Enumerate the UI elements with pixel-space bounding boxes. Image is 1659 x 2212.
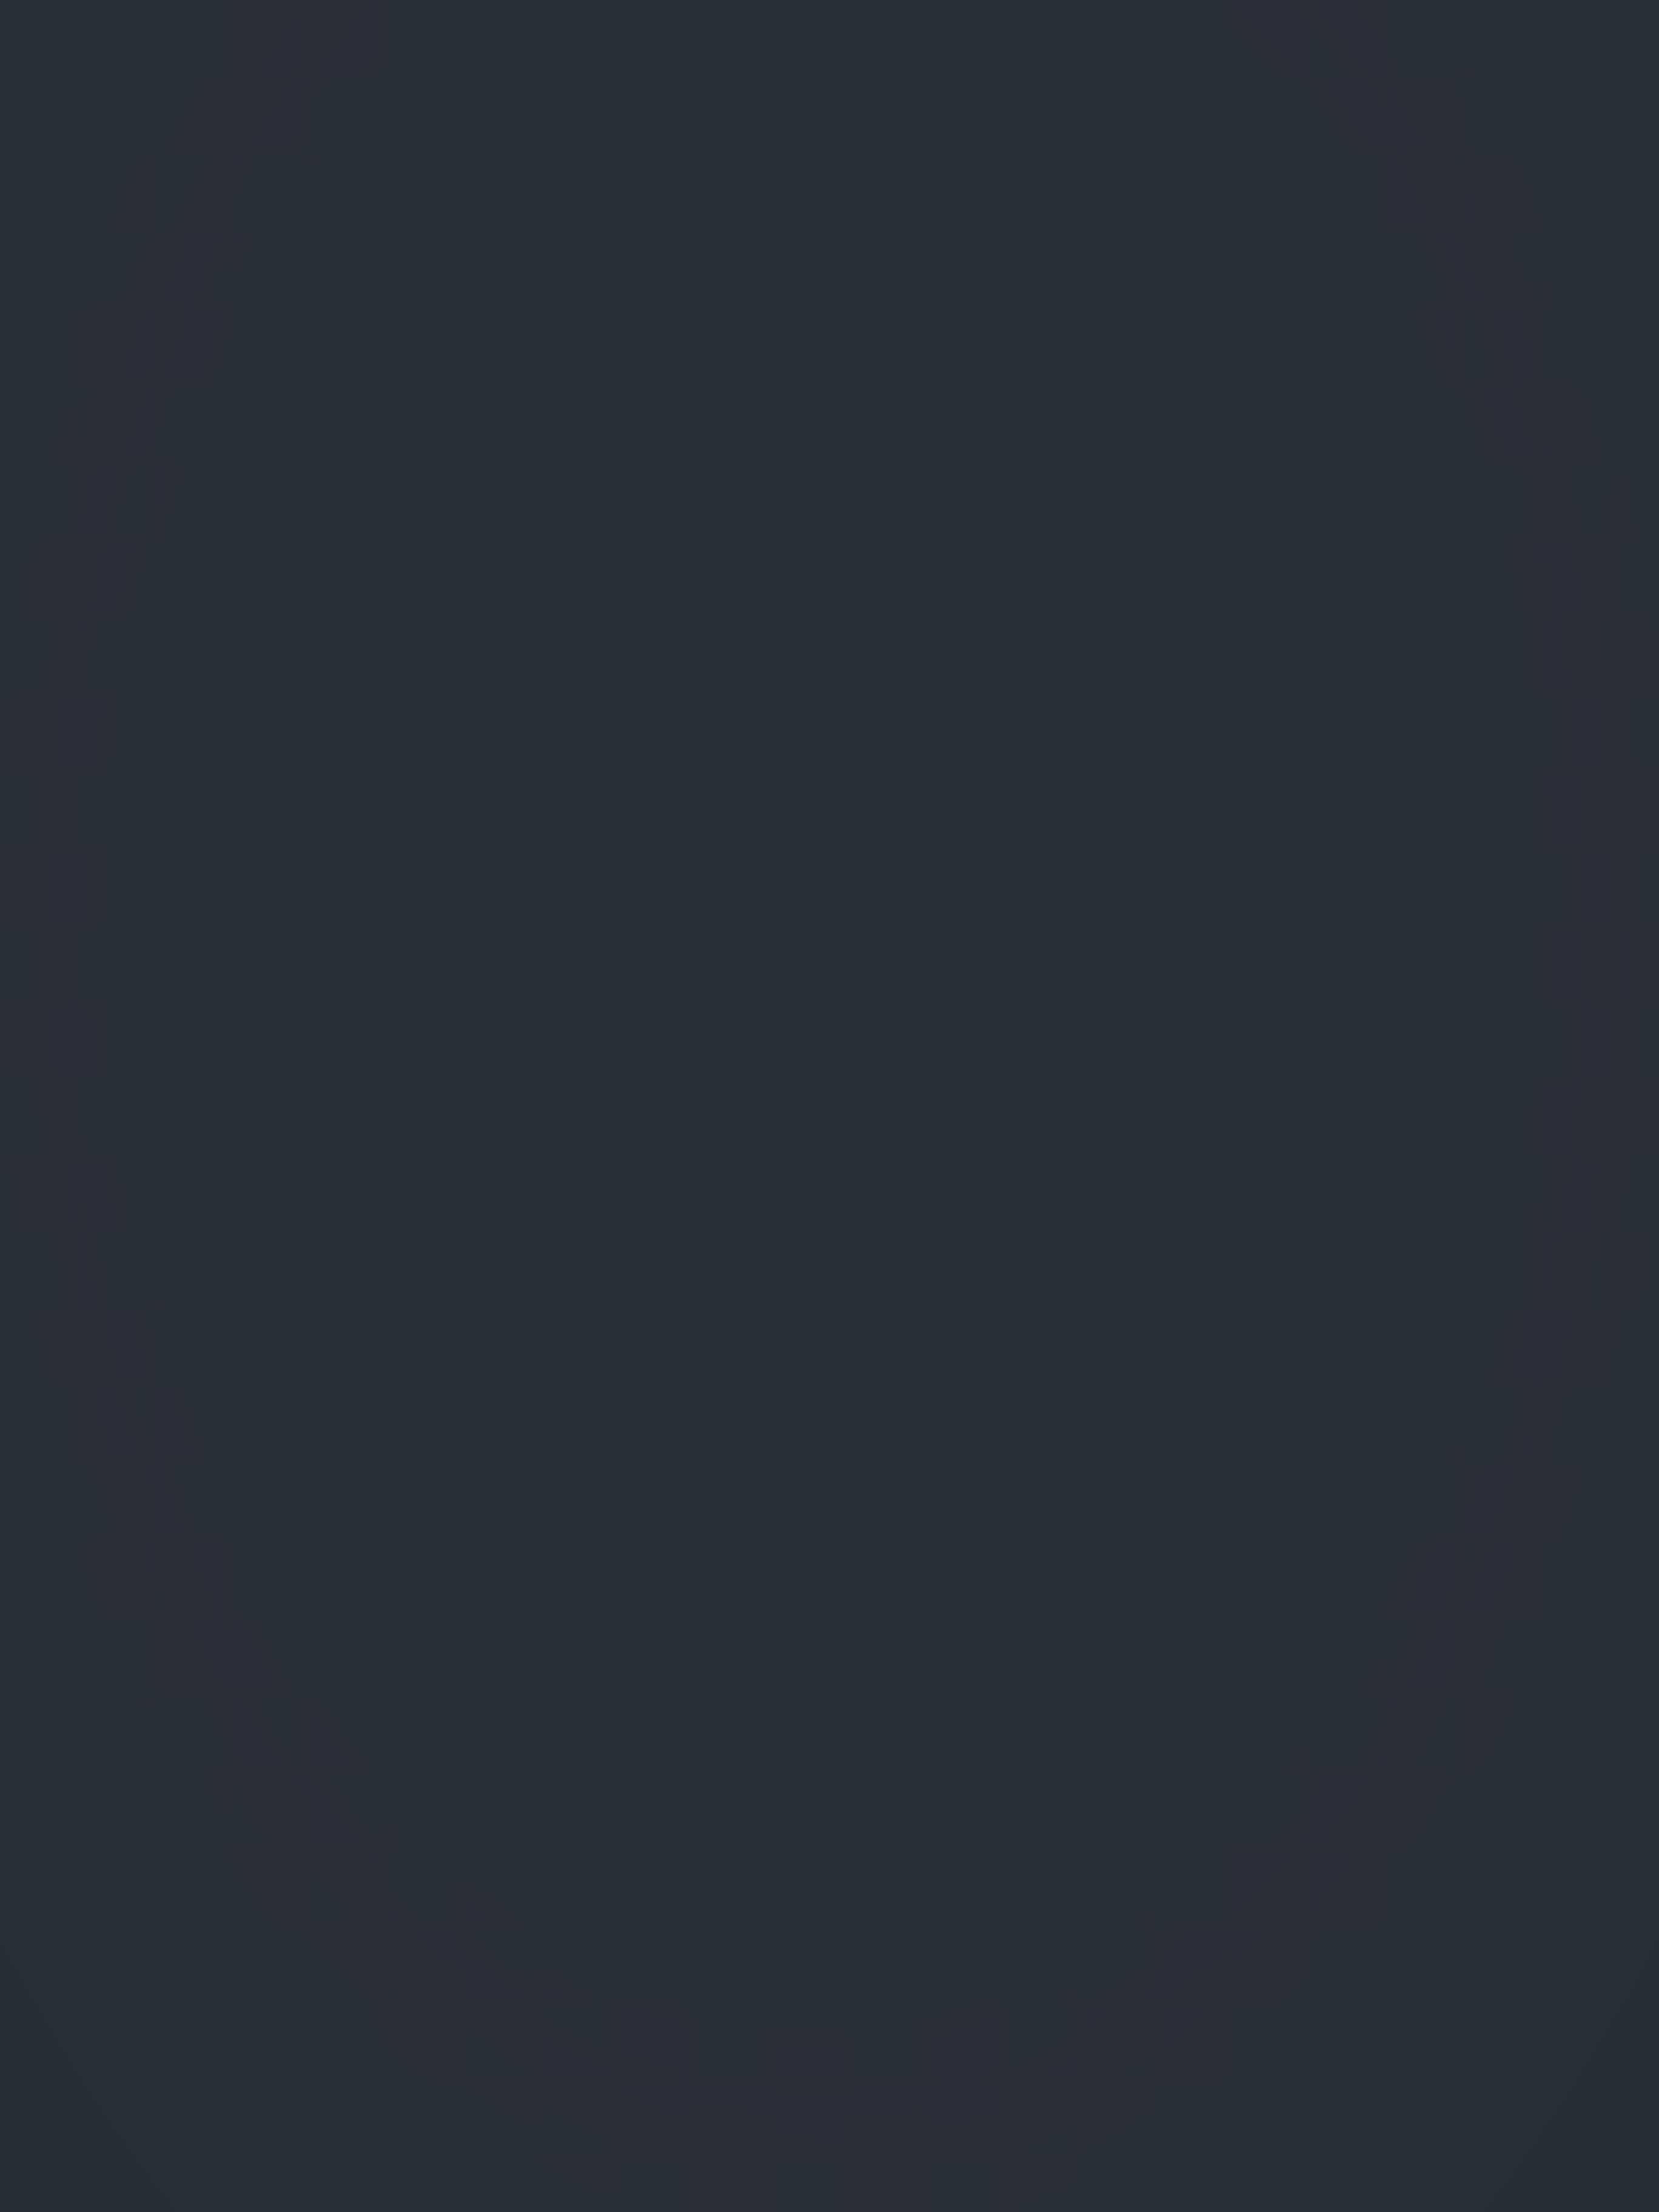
reviewer-signature <box>1358 2013 1637 2147</box>
j2-label: J2 <box>1139 926 1165 956</box>
j3-label: J3 <box>1167 1087 1193 1117</box>
map-scale: 1:300 <box>798 2008 871 2044</box>
building-outline <box>558 678 1170 963</box>
surveyor-stamp: 醴陵市国土资源测绘院 成果资料专用章 证书等级: 乙 级 证书编号: 43115… <box>931 1640 1376 1882</box>
stamp-certno-row: 证书编号: 4311522 <box>954 1786 1355 1840</box>
road-marker-94: 94 <box>1281 1148 1310 1181</box>
road-right-edge <box>1438 478 1520 2007</box>
dim-top: 20.35 <box>848 976 909 1012</box>
village-label: 王仙镇司徒村新屋组 <box>846 1586 1141 1630</box>
dim-right: 4.75 <box>1138 1002 1171 1050</box>
road-marker-95: 95 <box>1235 931 1264 964</box>
reviewer-label: 审核者: <box>1249 2037 1354 2083</box>
north-arrow-icon <box>1411 575 1467 723</box>
building-bottom-line <box>642 1227 1178 1232</box>
fraction-denominator: 072 <box>968 1061 1013 1094</box>
stamp-org: 醴陵市国土资源测绘院 <box>951 1649 1352 1703</box>
embankment-line-right <box>1178 1230 1281 1606</box>
stamp-grade-value: 乙 级 <box>1222 1741 1312 1789</box>
survey-method-note: 2017年解析法测绘界址点 <box>159 2012 548 2061</box>
owner-name: 唐征 <box>866 1053 926 1100</box>
dim-left: 4.75 <box>620 1085 654 1134</box>
dim-bottom: 20.30 <box>866 1109 927 1145</box>
building-top-label: 砖2 <box>896 872 940 904</box>
stamp-purpose: 成果资料专用章 <box>953 1695 1353 1749</box>
stamp-issuer-label: 发证机关: <box>956 1837 1085 1882</box>
north-label: 北 <box>1416 532 1446 565</box>
stamp-certno-label: 证书编号: <box>954 1791 1092 1840</box>
stamp-issuer-value: 湖南省国土资源厅 <box>1085 1832 1323 1879</box>
stamp-issuer-row: 发证机关: 湖南省国土资源厅 <box>956 1831 1356 1882</box>
agency-side-label: 醴陵市国土资源局 <box>84 1618 135 1996</box>
j1-label: J1 <box>587 1006 614 1036</box>
draw-date-label: 制图日期: <box>159 2056 312 2105</box>
draw-date-value: 2017年8月19日 <box>350 2056 583 2105</box>
paperclip-icon <box>447 0 610 204</box>
parcel-area-red: 96.42 <box>1053 1033 1119 1073</box>
road-marker-90: 90 <box>1436 1580 1465 1612</box>
drafter-label: 制图者: <box>1249 1992 1354 2038</box>
building-bottom-label: 砖3 <box>796 1176 839 1208</box>
map-linework: 北 J1 J2 J3 J4 20.35 20.30 4.75 4.75 砖2 砖… <box>0 0 1659 2212</box>
road-side-rungs <box>1470 663 1503 1192</box>
stamp-grade-row: 证书等级: 乙 级 <box>954 1740 1355 1794</box>
road-marker-91: 91 <box>1307 1607 1336 1639</box>
road-marker-92: 92 <box>1298 1480 1327 1512</box>
road-marker-93: 93 <box>1293 1366 1322 1398</box>
cement-label: 水泥 <box>1299 969 1357 1001</box>
stamp-grade-label: 证书等级: <box>954 1746 1091 1794</box>
stamp-certno-value: 4311522 <box>1161 1795 1313 1834</box>
review-date-value: 2017年8月19日 <box>350 2098 583 2147</box>
j4-label: J4 <box>615 1179 642 1209</box>
review-date-label: 审核日期: <box>159 2098 312 2147</box>
parcel-code-fraction: JC00010 072 <box>928 1023 1050 1099</box>
